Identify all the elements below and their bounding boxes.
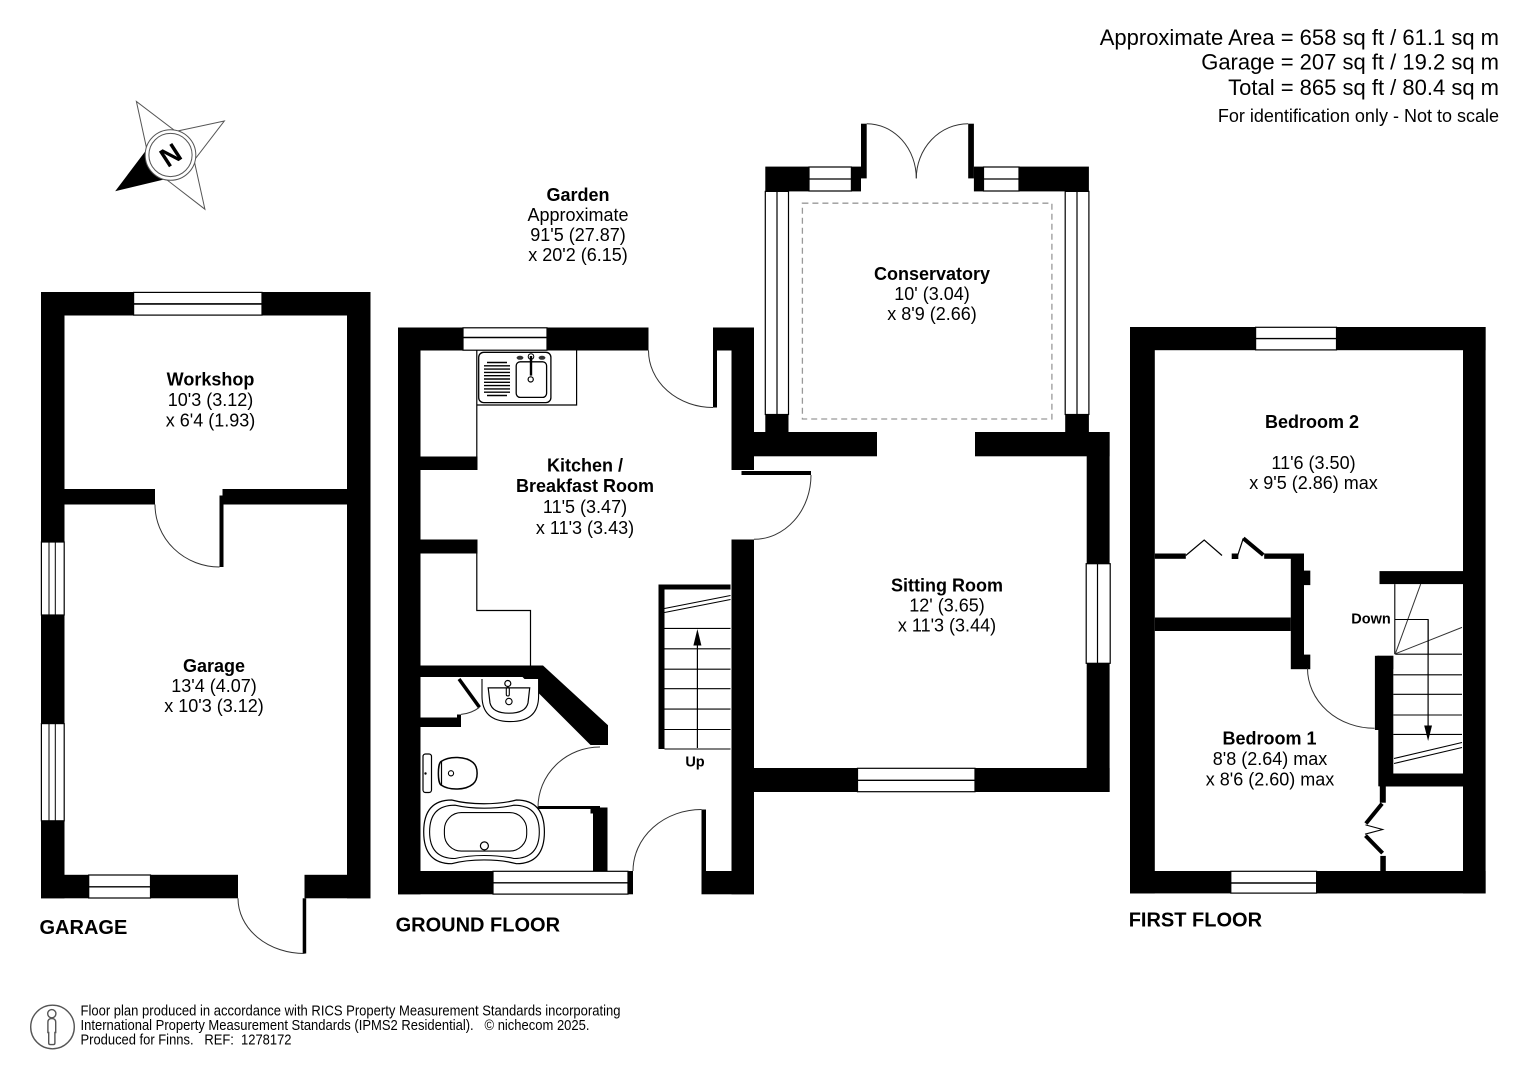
svg-text:x 11'3 (3.43): x 11'3 (3.43): [536, 518, 634, 538]
svg-text:x 20'2 (6.15): x 20'2 (6.15): [528, 245, 628, 265]
svg-text:Kitchen /: Kitchen /: [547, 456, 623, 476]
svg-text:Bedroom 1: Bedroom 1: [1222, 729, 1316, 749]
svg-text:Produced for Finns. REF: 12: Produced for Finns. REF: 1278172: [81, 1031, 292, 1048]
svg-text:For identification only - Not: For identification only - Not to scale: [1218, 106, 1499, 126]
svg-text:x 8'9 (2.66): x 8'9 (2.66): [887, 304, 976, 324]
svg-text:Garage = 207 sq ft / 19.2 sq m: Garage = 207 sq ft / 19.2 sq m: [1201, 50, 1499, 75]
svg-text:Total = 865 sq ft / 80.4 sq m: Total = 865 sq ft / 80.4 sq m: [1228, 75, 1499, 100]
svg-text:Workshop: Workshop: [167, 370, 255, 390]
svg-text:Bedroom 2: Bedroom 2: [1265, 412, 1359, 432]
svg-text:GROUND FLOOR: GROUND FLOOR: [396, 915, 561, 937]
svg-text:Down: Down: [1351, 612, 1390, 628]
svg-text:Conservatory: Conservatory: [874, 264, 990, 284]
svg-text:Garden: Garden: [546, 185, 609, 205]
svg-text:Breakfast Room: Breakfast Room: [516, 476, 654, 496]
svg-text:x 8'6 (2.60) max: x 8'6 (2.60) max: [1206, 769, 1335, 789]
svg-text:10'3 (3.12): 10'3 (3.12): [168, 390, 254, 410]
svg-text:13'4 (4.07): 13'4 (4.07): [171, 676, 257, 696]
svg-text:11'6 (3.50): 11'6 (3.50): [1271, 453, 1355, 473]
svg-text:Up: Up: [685, 755, 704, 771]
svg-text:Sitting Room: Sitting Room: [891, 576, 1003, 596]
svg-text:12' (3.65): 12' (3.65): [909, 596, 984, 616]
svg-text:x 9'5 (2.86) max: x 9'5 (2.86) max: [1249, 473, 1378, 493]
svg-text:Approximate Area = 658 sq ft /: Approximate Area = 658 sq ft / 61.1 sq m: [1100, 25, 1499, 50]
svg-text:Approximate: Approximate: [527, 205, 628, 225]
svg-text:10' (3.04): 10' (3.04): [894, 284, 969, 304]
svg-text:91'5 (27.87): 91'5 (27.87): [530, 225, 626, 245]
svg-text:x 6'4 (1.93): x 6'4 (1.93): [166, 411, 255, 431]
svg-text:x 11'3 (3.44): x 11'3 (3.44): [898, 616, 996, 636]
svg-text:FIRST FLOOR: FIRST FLOOR: [1129, 910, 1263, 932]
svg-text:8'8 (2.64) max: 8'8 (2.64) max: [1213, 749, 1328, 769]
svg-text:11'5 (3.47): 11'5 (3.47): [543, 497, 627, 517]
svg-text:Garage: Garage: [183, 656, 245, 676]
svg-text:x 10'3 (3.12): x 10'3 (3.12): [164, 696, 264, 716]
svg-text:GARAGE: GARAGE: [40, 917, 128, 939]
